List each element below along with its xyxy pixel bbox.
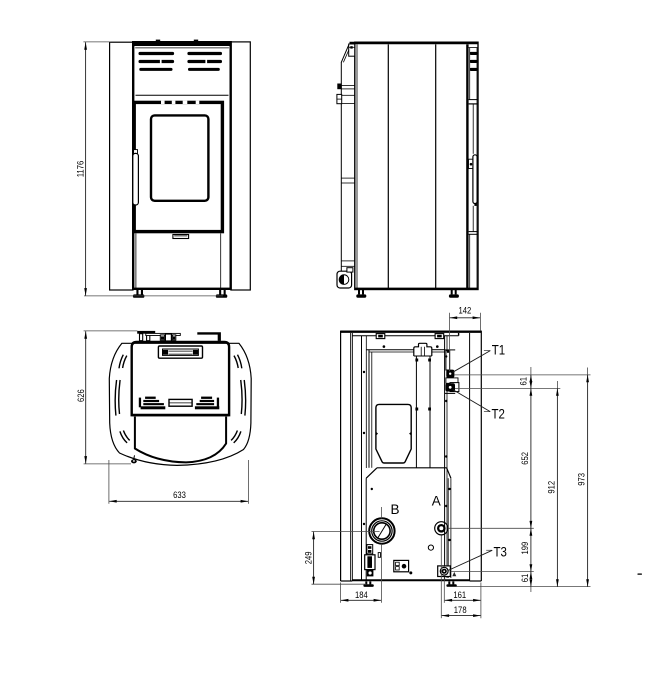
svg-text:626: 626 [76,389,87,402]
svg-text:652: 652 [520,452,531,465]
svg-text:633: 633 [173,490,186,501]
svg-text:249: 249 [304,552,315,565]
svg-text:1176: 1176 [76,161,87,178]
svg-text:T3: T3 [494,544,507,559]
svg-text:973: 973 [576,473,587,486]
svg-text:161: 161 [453,590,466,601]
svg-text:142: 142 [459,306,472,317]
svg-text:A: A [432,494,441,509]
svg-text:B: B [391,502,400,517]
svg-text:184: 184 [355,590,368,601]
svg-text:912: 912 [546,481,557,494]
svg-text:61: 61 [520,574,531,583]
svg-text:61: 61 [518,377,529,386]
svg-text:199: 199 [520,542,531,555]
svg-text:178: 178 [454,605,467,616]
svg-text:T2: T2 [492,407,505,422]
svg-text:T1: T1 [492,343,505,358]
